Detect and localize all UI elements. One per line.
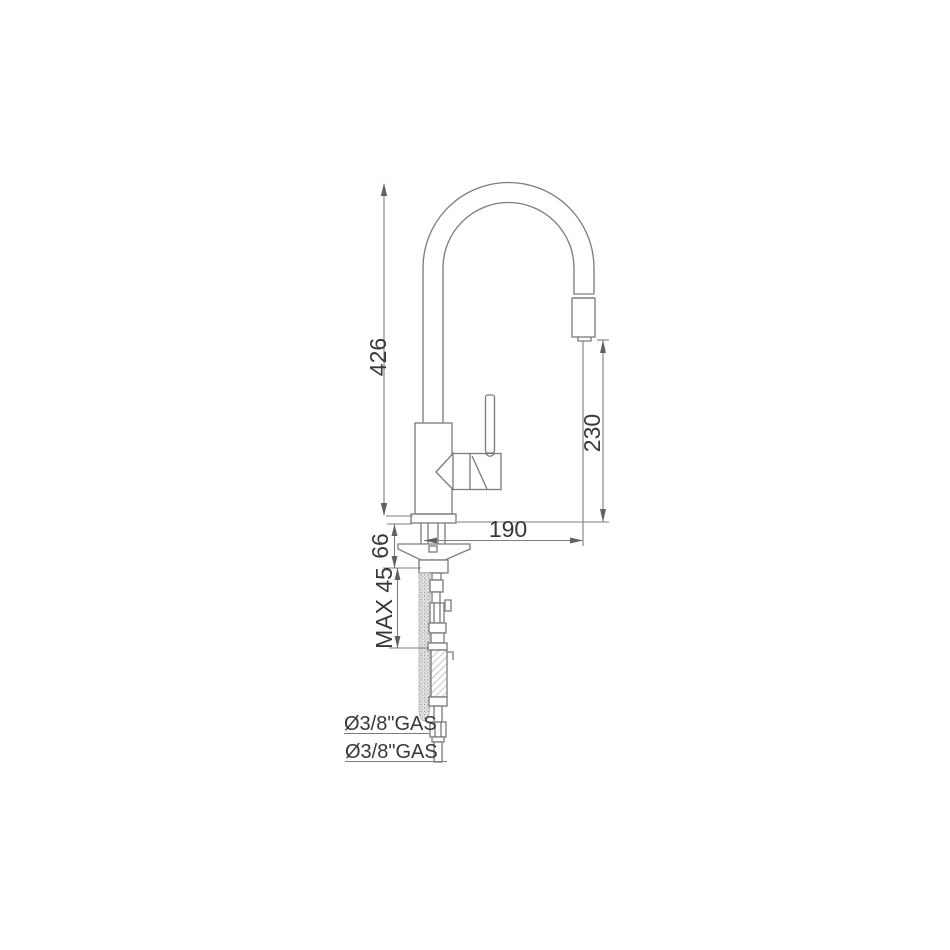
dimension-spout-height: 230 — [457, 340, 609, 522]
mounting-block — [419, 560, 448, 573]
arrowhead-down-icon — [600, 509, 606, 522]
side-tab — [445, 600, 451, 611]
dimension-total-height: 426 — [365, 183, 413, 516]
dim-value-190: 190 — [489, 516, 527, 542]
valve-wedge — [436, 454, 453, 490]
washer — [428, 643, 447, 650]
hex-nut-mid — [429, 697, 447, 706]
hex-nut-upper — [429, 623, 446, 633]
dim-value-max45: MAX 45 — [371, 567, 397, 649]
tailpiece-seg-5 — [431, 633, 444, 643]
faucet-handle — [436, 395, 501, 490]
dim-value-66: 66 — [367, 533, 393, 559]
tailpiece-seg-4 — [430, 603, 444, 623]
outer-arc — [423, 183, 594, 269]
pull-out-spray-head — [572, 294, 595, 341]
cartridge-diagonal — [472, 456, 487, 489]
tailpiece-seg-2 — [430, 580, 443, 592]
label-inlet-bottom: Ø3/8"GAS — [345, 741, 447, 763]
inlet-label-top: Ø3/8"GAS — [344, 713, 437, 735]
base-flange — [411, 514, 456, 523]
tailpiece-seg-3 — [432, 592, 440, 603]
arrowhead-right-icon — [570, 538, 583, 544]
arrowhead-up-icon — [381, 183, 387, 196]
handle-lever-rod — [486, 395, 495, 453]
arrowhead-left-icon — [424, 538, 437, 544]
dimension-spout-reach: 190 — [424, 341, 583, 546]
deck-mounting — [398, 523, 470, 573]
spray-head-body — [572, 298, 595, 337]
faucet-spout-arc — [423, 183, 594, 424]
label-inlet-top: Ø3/8"GAS — [344, 713, 437, 735]
inner-arc — [443, 203, 574, 268]
faucet-diagram-svg: 426 66 MAX 45 230 190 Ø3/8"GAS Ø3/8"GAS — [0, 0, 950, 950]
braided-hose-section — [431, 650, 447, 697]
technical-drawing-canvas: 426 66 MAX 45 230 190 Ø3/8"GAS Ø3/8"GAS — [0, 0, 950, 950]
arrowhead-down-icon — [381, 503, 387, 516]
dim-value-426: 426 — [365, 338, 391, 376]
inlet-label-bottom: Ø3/8"GAS — [345, 741, 438, 763]
arrowhead-up-icon — [600, 340, 606, 353]
tailpiece-seg-1 — [432, 573, 441, 580]
side-hook — [447, 652, 453, 660]
